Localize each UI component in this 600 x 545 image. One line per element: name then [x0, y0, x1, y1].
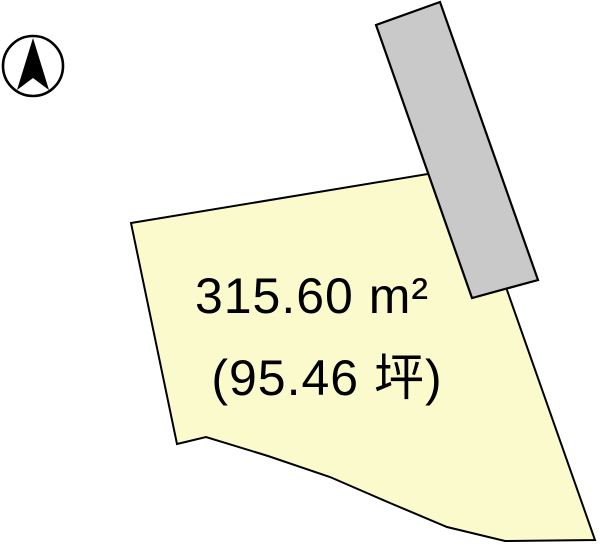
land-plot-diagram: 315.60 m² (95.46 坪): [0, 0, 600, 545]
north-arrow-icon: [17, 38, 49, 90]
north-compass: [3, 36, 63, 96]
land-parcel-shape: [131, 168, 595, 541]
diagram-drawing: [0, 0, 600, 545]
